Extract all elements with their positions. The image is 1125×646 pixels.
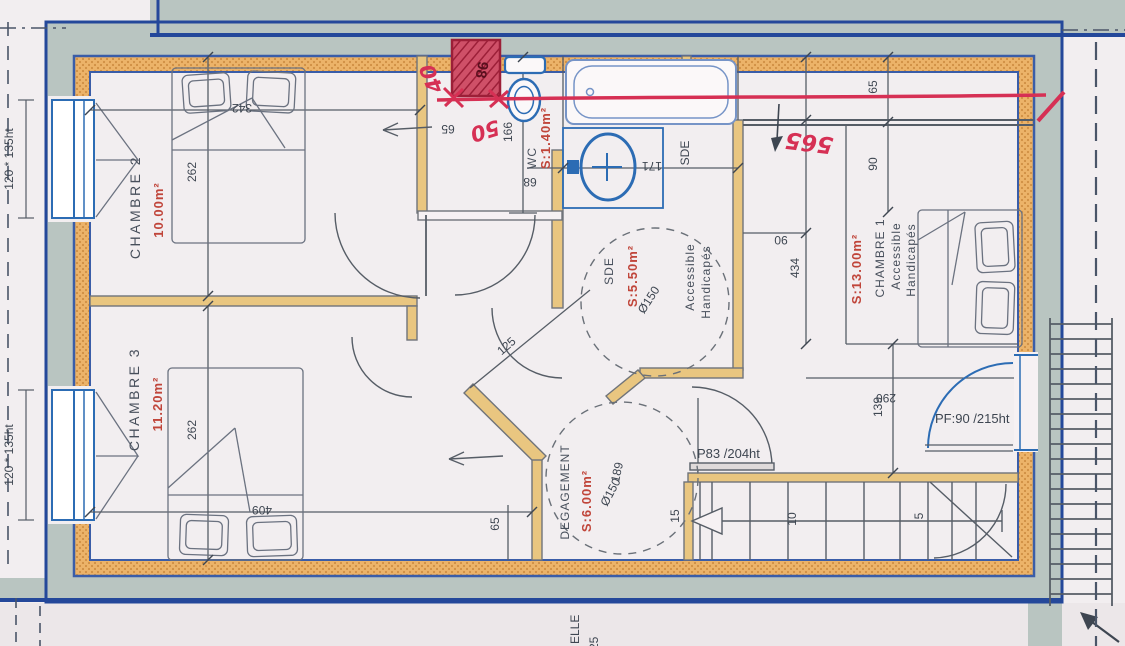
dim-10: 10	[785, 512, 799, 526]
dim-171: 171	[642, 159, 662, 173]
window-left-top	[48, 96, 94, 222]
dim-15: 15	[668, 509, 682, 523]
degagement-name: DEGAGEMENT	[558, 444, 572, 539]
dim-68: 68	[523, 175, 537, 189]
bathtub	[566, 60, 736, 124]
chambre1-accessible-1: Accessible	[889, 222, 903, 289]
sde-accessible-2: Handicapés	[699, 245, 713, 318]
wc-area: S:1.40m²	[538, 107, 553, 169]
dim-65-hall: 65	[441, 122, 455, 136]
dim-434: 434	[788, 258, 802, 278]
stair-door-leaf	[690, 463, 774, 470]
chambre3-name: CHAMBRE 3	[126, 347, 142, 451]
chambre1-area: S:13.00m²	[849, 234, 864, 304]
chambre2-name: CHAMBRE 2	[127, 155, 143, 259]
scale-text-2: 25	[587, 636, 601, 646]
dim-166: 166	[501, 122, 515, 142]
dim-5: 5	[912, 512, 926, 519]
wc-name: WC	[525, 147, 539, 169]
dim-262-ch2: 262	[185, 162, 199, 182]
scale-text-1: ELLE	[568, 615, 582, 644]
chambre1-name: CHAMBRE 1	[873, 218, 887, 297]
dim-409: 409	[252, 503, 272, 517]
chambre3-area: 11.20m²	[150, 377, 165, 432]
stair-door-label: P83 /204ht	[697, 446, 760, 461]
sde-corner-label: SDE	[678, 141, 692, 166]
floor-plan-drawing: 120 * 135ht 120 * 135ht CHAMBRE 2 10.00m…	[0, 0, 1125, 646]
window-top-label: 120 * 135ht	[2, 128, 16, 190]
red-box-label: 98	[472, 60, 492, 79]
dim-90-top: 90	[774, 233, 788, 247]
floor-plan-scan: 120 * 135ht 120 * 135ht CHAMBRE 2 10.00m…	[0, 0, 1125, 646]
degagement-area: S:6.00m²	[579, 470, 594, 532]
dim-65-right: 65	[866, 80, 880, 94]
dim-342: 342	[232, 101, 252, 115]
sde-name: SDE	[602, 257, 616, 285]
window-left-bottom	[48, 386, 94, 524]
dim-90-right: 90	[866, 157, 880, 171]
exterior-door-label: PF:90 /215ht	[935, 411, 1010, 426]
dim-65-bottom: 65	[488, 517, 502, 531]
dim-262-ch3: 262	[185, 420, 199, 440]
chambre2-area: 10.00m²	[151, 182, 166, 237]
dim-139: 139	[871, 397, 885, 417]
sde-accessible-1: Accessible	[683, 243, 697, 310]
chambre1-accessible-2: Handicapés	[904, 223, 918, 296]
scan-bottom-margin	[0, 603, 1125, 646]
sde-area: S:5.50m²	[625, 245, 640, 307]
window-bottom-label: 120 * 135ht	[2, 424, 16, 486]
